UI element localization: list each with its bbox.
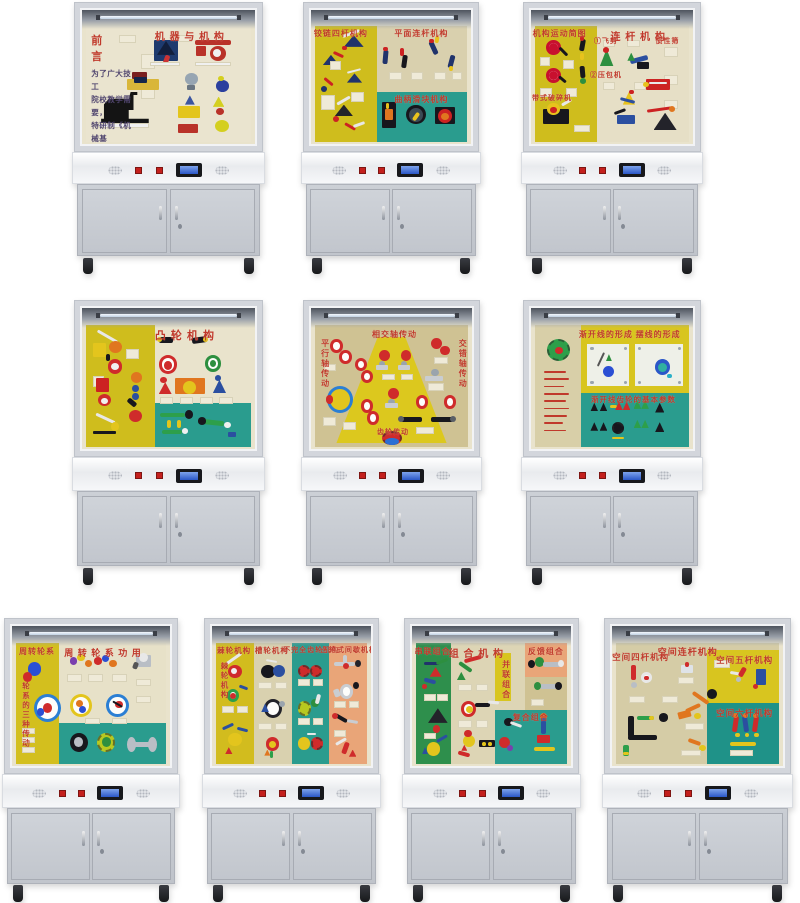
model-bar (649, 716, 654, 721)
caster-wheel-left-icon (532, 568, 542, 585)
door-handle-icon (382, 513, 385, 528)
model-disc (669, 106, 675, 112)
model-tri (627, 53, 635, 61)
model-disc (449, 66, 454, 71)
door-handle-icon (97, 831, 100, 846)
speaker-grille-right-icon (657, 471, 671, 480)
model-bar (649, 82, 667, 85)
lamp-cap-icon (765, 631, 770, 636)
model-disc (37, 708, 45, 715)
caster-wheel-left-icon (83, 568, 93, 585)
fluorescent-lamp (25, 631, 158, 636)
screen-display (623, 472, 641, 480)
model-card (540, 57, 551, 66)
model-card (382, 374, 394, 380)
board-label: 渐开线的形成 (579, 329, 633, 340)
door-handle-icon (688, 831, 691, 846)
speaker-grille-left-icon (108, 166, 122, 175)
model-disc (558, 660, 564, 667)
lamp-tube (328, 16, 454, 19)
board-label: 反馈组合 (528, 646, 564, 657)
model-disc (355, 660, 361, 667)
model-card (321, 95, 335, 110)
display-cabinet: 空间连杆机构空间四杆机构空间五杆机构空间六杆机构 (604, 618, 791, 902)
cabinet-door-left (82, 496, 167, 563)
model-bar (610, 405, 616, 407)
screen-display (401, 166, 419, 174)
model-disc (550, 107, 556, 113)
model-disc (590, 381, 593, 384)
model-bar (160, 413, 185, 418)
speaker-grille-left-icon (637, 789, 651, 798)
model-bar (106, 354, 110, 361)
model-card (313, 679, 324, 686)
model-rect (93, 431, 116, 435)
board-label: ②压包机 (590, 70, 622, 80)
model-card (574, 125, 591, 132)
model-bar (544, 415, 567, 417)
model-disc (631, 682, 637, 688)
cabinet-base (77, 184, 260, 256)
board-label: 曲柄滑块机构 (394, 94, 448, 105)
caster-wheel-right-icon (460, 258, 470, 274)
door-handle-icon (498, 831, 501, 846)
model-disc (440, 346, 449, 356)
control-console (2, 774, 179, 808)
display-cabinet: 铰链四杆机构平面连杆机构曲柄滑块机构 (303, 2, 479, 274)
board-label: 棘轮机构 (219, 662, 230, 700)
model-card (180, 397, 193, 404)
model-card (112, 718, 127, 724)
display-cabinet-1: 机 器 与 机 构前 言为了广大技工院校教学需要，特研制《机械基础》陈列柜，通过… (74, 2, 263, 274)
cabinet-door-right (493, 813, 572, 880)
red-button-1 (135, 167, 142, 174)
model-card (458, 720, 472, 727)
model-gear (298, 701, 312, 716)
cabinet-door-left (11, 813, 89, 880)
model-card (428, 383, 443, 390)
board-label: 空间六杆机构 (716, 707, 773, 719)
model-ring (444, 395, 456, 408)
red-button-1 (579, 167, 586, 174)
model-bar (383, 50, 389, 64)
lamp-cap-icon (676, 313, 680, 318)
case-interior: 铰链四杆机构平面连杆机构曲柄滑块机构 (311, 10, 471, 144)
model-card (334, 730, 346, 737)
control-screen (705, 786, 731, 800)
model-disc (216, 80, 229, 92)
lamp-cap-icon (455, 313, 459, 318)
cabinet-door-right (170, 189, 255, 253)
model-bar (580, 53, 584, 60)
control-strip (73, 163, 264, 177)
keyhole-icon (100, 849, 104, 854)
display-case: 铰链四杆机构平面连杆机构曲柄滑块机构 (303, 2, 479, 152)
case-interior: 机构运动简图连 杆 机 构①飞剪惯性筛②压包机带式破碎机 (531, 10, 693, 144)
control-strip (302, 163, 480, 177)
display-cabinet: 组 合 机 构串联组合并联组合反馈组合复合组合 (404, 618, 579, 902)
speaker-grille-left-icon (233, 789, 247, 798)
model-disc (427, 742, 441, 755)
caster-wheel-left-icon (413, 885, 423, 902)
model-rect (398, 365, 410, 370)
red-button-1 (359, 167, 366, 174)
caster-wheel-right-icon (682, 258, 692, 274)
case-interior: 渐开线的形成摆线的形成渐开线齿轮的基本参数 (531, 308, 693, 449)
model-rect (756, 669, 766, 685)
model-disc (422, 684, 427, 689)
board-label: 带式破碎机 (532, 93, 572, 103)
control-screen (619, 469, 645, 483)
model-rect (376, 365, 388, 370)
model-bar (688, 738, 701, 746)
door-handle-icon (482, 831, 485, 846)
model-bar (534, 747, 555, 751)
fluorescent-lamp (544, 313, 680, 318)
keyhole-icon (301, 849, 305, 854)
model-disc (694, 713, 700, 719)
display-case: 空间连杆机构空间四杆机构空间五杆机构空间六杆机构 (604, 618, 791, 774)
screen-display (180, 166, 198, 174)
door-handle-icon (159, 206, 162, 220)
display-cabinet-9: 组 合 机 构串联组合并联组合反馈组合复合组合 (404, 618, 579, 902)
lamp-cap-icon (153, 631, 157, 636)
speaker-grille-left-icon (108, 471, 122, 480)
cabinet-door-left (82, 189, 167, 253)
model-disc (198, 417, 206, 424)
model-disc (385, 438, 399, 445)
speaker-grille-left-icon (553, 166, 567, 175)
display-case: 平行轴传动相交轴传动交错轴传动齿轮传动 (303, 300, 480, 457)
screen-display (623, 166, 641, 174)
cabinet-door-right (392, 189, 471, 253)
caster-wheel-left-icon (13, 885, 23, 902)
model-tri (654, 113, 677, 130)
model-card (136, 696, 151, 703)
display-cabinet: 周转轮系周 转 轮 系 功 用轮系的三种传动 (4, 618, 178, 902)
control-strip (603, 786, 792, 800)
case-inner-frame: 组 合 机 构串联组合并联组合反馈组合复合组合 (410, 624, 573, 768)
model-disc (111, 422, 119, 431)
model-disc (629, 90, 634, 95)
cabinet-door-right (699, 813, 783, 880)
display-cabinet-5: 平行轴传动相交轴传动交错轴传动齿轮传动 (303, 300, 480, 585)
red-button-2 (78, 790, 85, 797)
case-interior: 空间连杆机构空间四杆机构空间五杆机构空间六杆机构 (612, 626, 783, 766)
model-bar (488, 701, 499, 705)
model-card (313, 718, 324, 725)
control-strip (3, 786, 178, 800)
red-button-1 (135, 472, 142, 479)
model-disc (111, 363, 119, 370)
cabinet-door-left (411, 813, 490, 880)
model-card (437, 694, 448, 701)
display-board: 空间连杆机构空间四杆机构空间五杆机构空间六杆机构 (616, 643, 778, 764)
door-handle-icon (159, 513, 162, 528)
caster-wheel-right-icon (682, 568, 692, 585)
model-disc (549, 43, 558, 52)
model-card (237, 706, 248, 713)
display-cabinet-7: 周转轮系周 转 轮 系 功 用轮系的三种传动 (4, 618, 178, 902)
case-inner-frame: 铰链四杆机构平面连杆机构曲柄滑块机构 (309, 8, 473, 146)
model-disc (101, 398, 108, 404)
cabinet-base (306, 491, 478, 567)
control-strip (403, 786, 580, 800)
keyhole-icon (707, 849, 711, 854)
model-disc (555, 347, 563, 354)
speaker-grille-right-icon (215, 166, 229, 175)
model-card (275, 682, 287, 689)
speaker-grille-right-icon (536, 789, 550, 798)
model-card (160, 397, 173, 404)
model-card (195, 62, 231, 67)
control-strip (522, 469, 702, 483)
door-handle-icon (603, 206, 606, 220)
display-board: 棘轮机构槽轮机构不完全齿轮机构凸轮式间歇机构棘轮机构 (216, 643, 367, 764)
control-screen (398, 469, 424, 483)
control-strip (302, 469, 481, 483)
cabinet-door-right (92, 813, 170, 880)
model-rect (425, 376, 443, 381)
model-card (298, 718, 310, 725)
model-card (681, 750, 700, 756)
model-disc (215, 375, 222, 381)
door-handle-icon (382, 206, 385, 220)
lamp-cap-icon (554, 631, 558, 636)
case-inner-frame: 机构运动简图连 杆 机 构①飞剪惯性筛②压包机带式破碎机 (529, 8, 695, 146)
model-card (685, 723, 704, 730)
model-rect (385, 403, 397, 408)
model-bar (177, 420, 181, 429)
model-tri (185, 95, 195, 104)
model-disc (644, 676, 649, 681)
cabinet-door-left (530, 496, 610, 563)
door-handle-icon (618, 206, 621, 220)
lamp-cap-icon (454, 15, 458, 20)
model-bar (401, 417, 422, 422)
red-button-1 (459, 790, 466, 797)
model-card (603, 82, 615, 90)
panel-section (535, 26, 597, 142)
display-cabinet: 机 器 与 机 构前 言为了广大技工院校教学需要，特研制《机械基础》陈列柜，通过… (74, 2, 263, 274)
model-bar (579, 66, 585, 78)
red-button-1 (579, 472, 586, 479)
model-disc (398, 416, 404, 422)
model-ring (339, 350, 351, 363)
door-handle-icon (175, 513, 178, 528)
door-handle-icon (82, 831, 85, 846)
cabinet-door-left (530, 189, 610, 253)
cabinet-door-left (612, 813, 696, 880)
model-bar (544, 371, 566, 373)
case-inner-frame: 平行轴传动相交轴传动交错轴传动齿轮传动 (309, 306, 474, 451)
display-cabinet-8: 棘轮机构槽轮机构不完全齿轮机构凸轮式间歇机构棘轮机构 (204, 618, 379, 902)
board-label: 并联组合 (501, 660, 512, 700)
model-bar (730, 742, 756, 746)
board-label: 凸 轮 机 构 (155, 327, 215, 343)
board-label: 凸轮式间歇机构 (321, 645, 371, 655)
cabinet-base (306, 184, 477, 256)
model-disc (109, 660, 117, 667)
model-bar (544, 422, 562, 424)
display-board: 机 器 与 机 构前 言为了广大技工院校教学需要，特研制《机械基础》陈列柜，通过… (86, 26, 250, 142)
model-ring (340, 684, 354, 699)
model-card (730, 750, 753, 756)
model-card (323, 417, 337, 426)
fluorescent-lamp (96, 313, 241, 318)
case-interior: 周转轮系周 转 轮 系 功 用轮系的三种传动 (12, 626, 170, 766)
red-button-2 (599, 167, 606, 174)
display-cabinet-3: 机构运动简图连 杆 机 构①飞剪惯性筛②压包机带式破碎机 (523, 2, 701, 274)
model-card (334, 701, 346, 708)
cabinet-base (607, 808, 788, 883)
model-disc (85, 660, 93, 667)
display-cabinet-10: 空间连杆机构空间四杆机构空间五杆机构空间六杆机构 (604, 618, 791, 902)
lamp-tube (100, 16, 237, 19)
model-disc (160, 377, 167, 383)
control-screen (498, 786, 524, 800)
red-button-2 (378, 167, 385, 174)
case-inner-frame: 渐开线的形成摆线的形成渐开线齿轮的基本参数 (529, 306, 695, 451)
model-card (258, 682, 272, 689)
caster-wheel-right-icon (461, 568, 471, 585)
model-tri (213, 380, 226, 393)
fluorescent-lamp (425, 631, 559, 636)
speaker-grille-left-icon (433, 789, 447, 798)
board-label: 串联组合 (415, 646, 451, 657)
panel-section (216, 643, 254, 764)
keyhole-icon (621, 224, 625, 229)
model-rect (385, 109, 393, 119)
display-case: 渐开线的形成摆线的形成渐开线齿轮的基本参数 (523, 300, 701, 457)
model-card (150, 62, 180, 67)
preface-line: 特研制《机械基 (91, 119, 137, 143)
cabinet-base (207, 808, 377, 883)
model-rect (96, 378, 109, 391)
control-console (72, 457, 265, 491)
model-card (126, 349, 139, 359)
red-button-2 (279, 790, 286, 797)
caster-wheel-right-icon (772, 885, 782, 902)
cabinet-door-right (613, 189, 693, 253)
fluorescent-lamp (324, 15, 458, 20)
keyhole-icon (621, 532, 625, 537)
fluorescent-lamp (544, 15, 680, 20)
model-disc (431, 369, 439, 376)
model-card (343, 422, 357, 429)
board-label: 平面连杆机构 (394, 28, 448, 39)
display-case: 机 器 与 机 构前 言为了广大技工院校教学需要，特研制《机械基础》陈列柜，通过… (74, 2, 263, 152)
display-cabinet: 机构运动简图连 杆 机 构①飞剪惯性筛②压包机带式破碎机 (523, 2, 701, 274)
model-card (411, 72, 423, 80)
screen-display (302, 789, 320, 797)
speaker-grille-right-icon (436, 166, 450, 175)
speaker-grille-left-icon (332, 166, 346, 175)
red-button-2 (599, 472, 606, 479)
control-screen (176, 163, 202, 177)
model-disc (228, 733, 242, 746)
model-card (476, 684, 488, 691)
cabinet-door-right (613, 496, 693, 563)
lamp-tube (548, 314, 676, 317)
door-handle-icon (282, 831, 285, 846)
preface-line: 院校教学需要， (91, 93, 137, 119)
model-disc (148, 737, 157, 752)
model-gear (310, 665, 322, 677)
red-button-2 (156, 167, 163, 174)
keyhole-icon (501, 849, 505, 854)
model-ring (416, 395, 428, 408)
model-disc (603, 366, 614, 377)
case-inner-frame: 凸 轮 机 构 (80, 306, 257, 451)
model-disc (507, 745, 513, 751)
board-label: 空间四杆机构 (612, 651, 669, 663)
lamp-tube (429, 632, 555, 635)
screen-display (402, 472, 420, 480)
model-card (112, 674, 127, 681)
model-bar (458, 750, 471, 757)
door-handle-icon (298, 831, 301, 846)
control-console (602, 774, 793, 808)
case-inner-frame: 空间连杆机构空间四杆机构空间五杆机构空间六杆机构 (610, 624, 785, 768)
control-console (521, 457, 703, 491)
model-card (200, 397, 213, 404)
model-card (349, 701, 360, 708)
model-rect (93, 343, 106, 356)
red-button-2 (379, 472, 386, 479)
screen-display (502, 789, 520, 797)
model-card (275, 723, 287, 730)
red-button-2 (479, 790, 486, 797)
display-case: 周转轮系周 转 轮 系 功 用轮系的三种传动 (4, 618, 178, 774)
display-cabinet-2: 铰链四杆机构平面连杆机构曲柄滑块机构 (303, 2, 479, 274)
board-label: 棘轮机构 (217, 645, 251, 656)
speaker-grille-left-icon (553, 471, 567, 480)
fluorescent-lamp (225, 631, 359, 636)
model-disc (643, 82, 649, 88)
model-disc (707, 689, 717, 699)
preface-title: 前 言 (91, 32, 137, 64)
model-disc (580, 78, 586, 84)
board-label: 摆线的形成 (636, 329, 681, 340)
cabinet-door-right (293, 813, 372, 880)
red-button-1 (359, 472, 366, 479)
control-strip (522, 163, 702, 177)
case-interior: 平行轴传动相交轴传动交错轴传动齿轮传动 (311, 308, 472, 449)
cabinet-door-right (393, 496, 473, 563)
control-screen (97, 786, 123, 800)
model-bar (400, 48, 404, 56)
model-bar (307, 733, 316, 735)
model-card (531, 699, 545, 706)
preface-line: 为了广大技工 (91, 67, 137, 93)
red-button-1 (59, 790, 66, 797)
control-strip (203, 786, 380, 800)
case-inner-frame: 棘轮机构槽轮机构不完全齿轮机构凸轮式间歇机构棘轮机构 (210, 624, 373, 768)
caster-wheel-left-icon (83, 258, 93, 274)
model-disc (230, 693, 236, 699)
control-console (402, 774, 581, 808)
model-card (389, 72, 401, 80)
screen-display (101, 789, 119, 797)
door-handle-icon (397, 206, 400, 220)
model-rect (187, 85, 195, 90)
model-disc (321, 86, 327, 92)
model-disc (433, 725, 441, 732)
speaker-grille-right-icon (436, 471, 450, 480)
red-button-1 (259, 790, 266, 797)
speaker-grille-right-icon (744, 789, 758, 798)
